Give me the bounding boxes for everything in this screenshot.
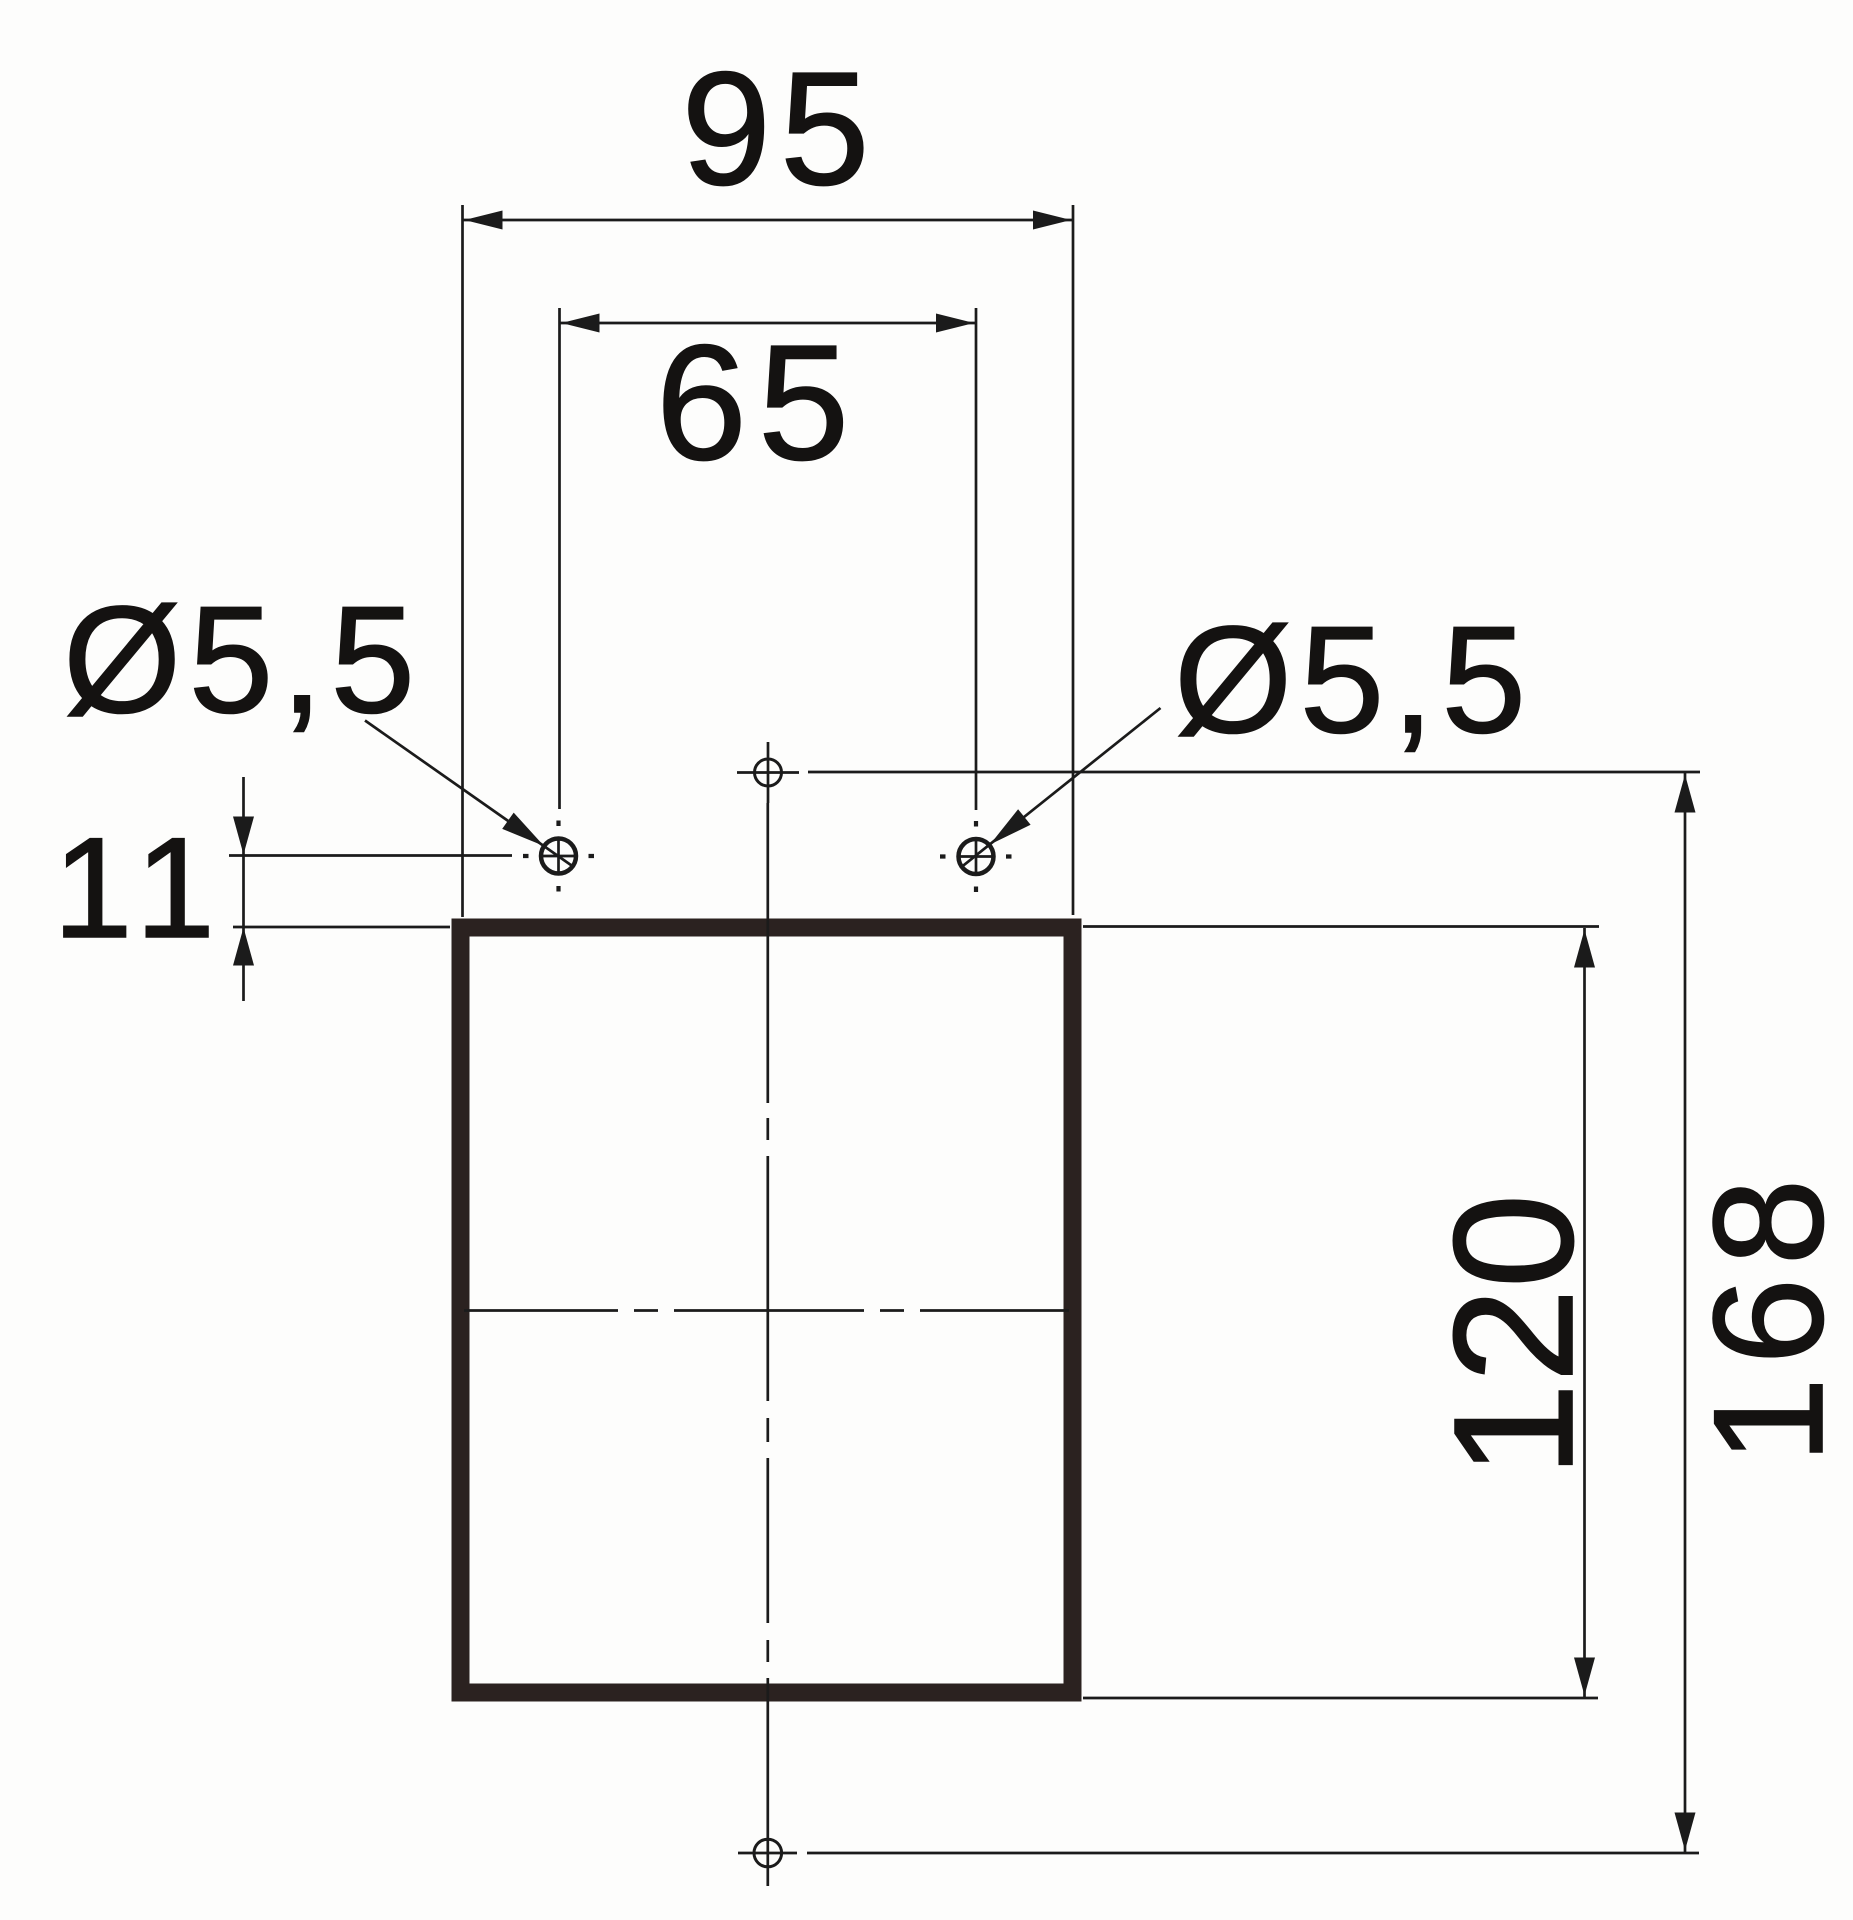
svg-text:95: 95 (681, 39, 878, 219)
svg-text:65: 65 (656, 311, 860, 494)
svg-text:120: 120 (1419, 1194, 1609, 1478)
svg-text:11: 11 (53, 809, 228, 968)
svg-text:Ø5,5: Ø5,5 (63, 575, 423, 745)
svg-text:Ø5,5: Ø5,5 (1174, 595, 1534, 765)
svg-text:168: 168 (1682, 1166, 1853, 1464)
